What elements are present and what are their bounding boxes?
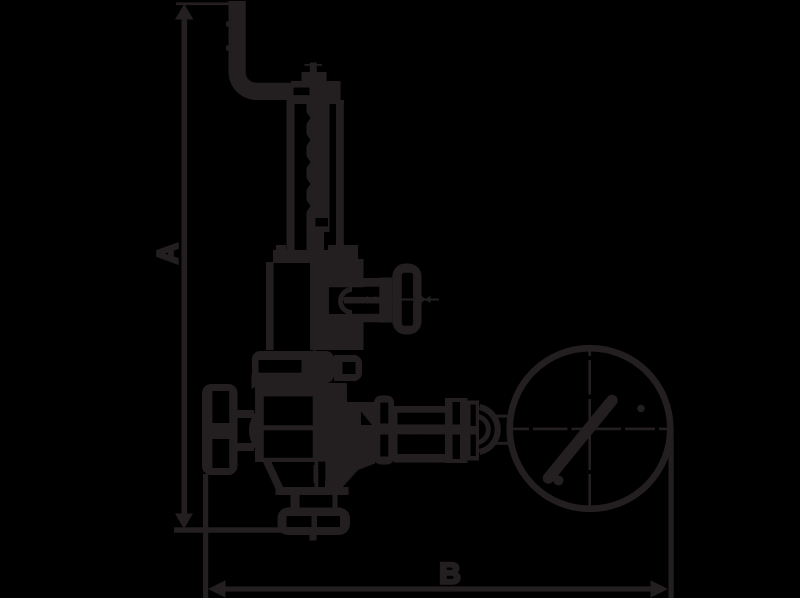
- svg-text:B: B: [439, 557, 461, 590]
- svg-text:A: A: [153, 243, 185, 264]
